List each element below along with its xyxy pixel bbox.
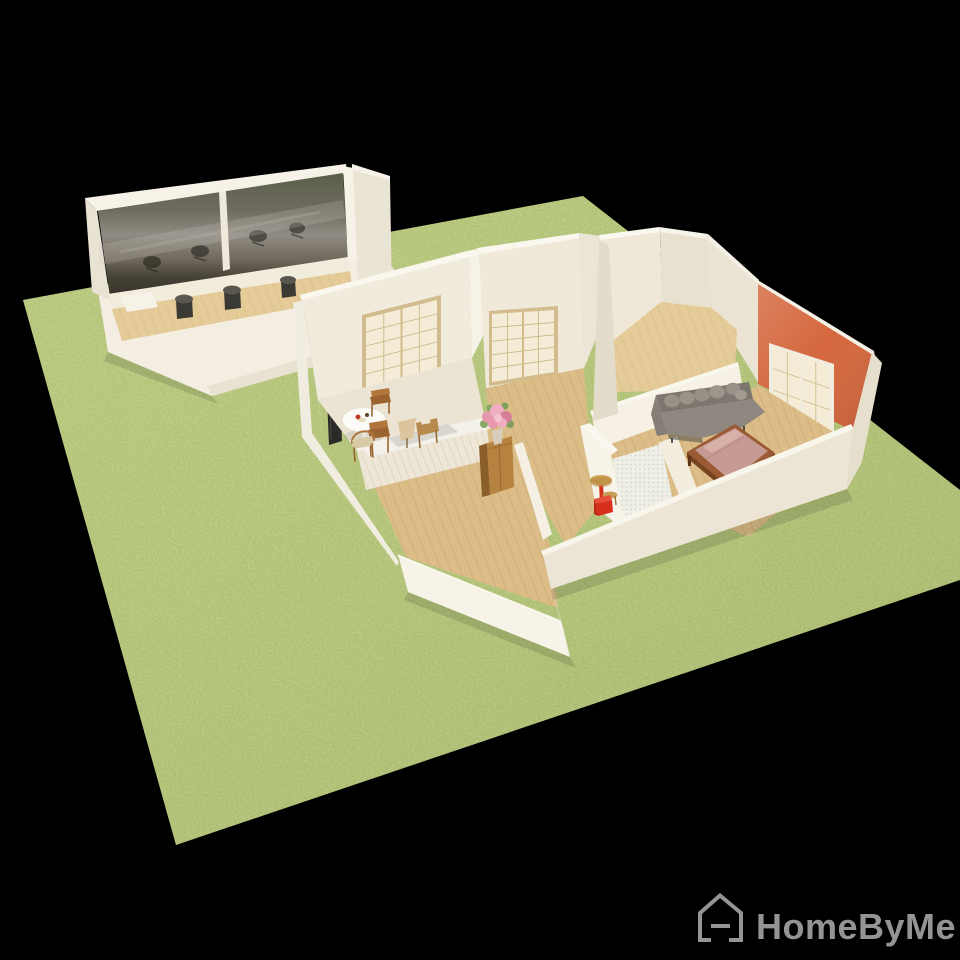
table-item-dark xyxy=(365,413,369,417)
bed-leg xyxy=(688,456,691,466)
middle-room-window xyxy=(489,306,558,386)
scene-svg: HomeByMe xyxy=(0,0,960,960)
bar-stool xyxy=(175,295,193,320)
chamfer-wall xyxy=(660,232,712,308)
homebyme-wordmark: HomeByMe xyxy=(756,906,956,947)
bar-stool xyxy=(223,286,241,311)
bar-stool xyxy=(280,276,296,298)
table-bowl xyxy=(358,418,366,422)
storage-cabinet xyxy=(479,436,514,497)
render-canvas: HomeByMe xyxy=(0,0,960,960)
